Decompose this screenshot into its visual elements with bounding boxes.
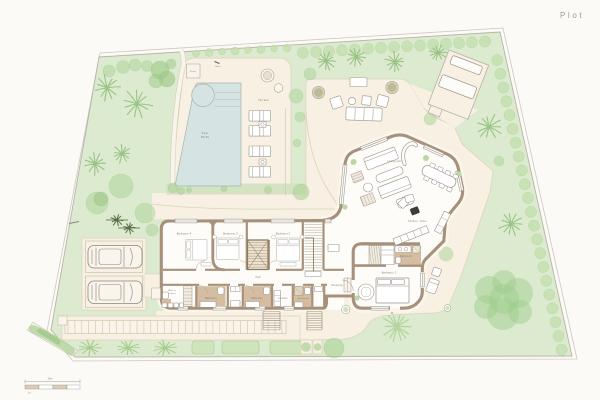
svg-text:0m: 0m [28, 393, 31, 395]
svg-text:Bathroom: Bathroom [298, 297, 309, 300]
svg-text:Plant: Plant [190, 70, 197, 73]
svg-text:Terrace: Terrace [258, 98, 269, 102]
svg-text:Gate: Gate [215, 65, 221, 68]
svg-text:Closet: Closet [168, 292, 175, 295]
svg-text:65x35: 65x35 [201, 136, 209, 139]
svg-text:Living room: Living room [387, 160, 402, 163]
svg-text:Bedroom 3: Bedroom 3 [223, 232, 238, 236]
svg-text:Kitchen - Diner: Kitchen - Diner [408, 220, 427, 223]
svg-text:Dressing: Dressing [331, 284, 343, 287]
svg-text:Bathroom: Bathroom [400, 255, 412, 258]
svg-text:Bathroom: Bathroom [251, 297, 263, 300]
svg-text:Laundry: Laundry [278, 297, 288, 300]
svg-text:Hall: Hall [256, 276, 261, 279]
svg-text:Pool: Pool [202, 131, 209, 135]
svg-text:Plot: Plot [560, 11, 584, 20]
svg-text:Bedroom 1: Bedroom 1 [382, 271, 397, 275]
svg-text:Bedroom 2: Bedroom 2 [276, 232, 291, 236]
svg-text:Built in: Built in [168, 289, 176, 292]
svg-text:Bathroom: Bathroom [205, 297, 217, 300]
svg-text:Bedroom 4: Bedroom 4 [177, 232, 192, 236]
svg-text:10m: 10m [47, 377, 52, 381]
